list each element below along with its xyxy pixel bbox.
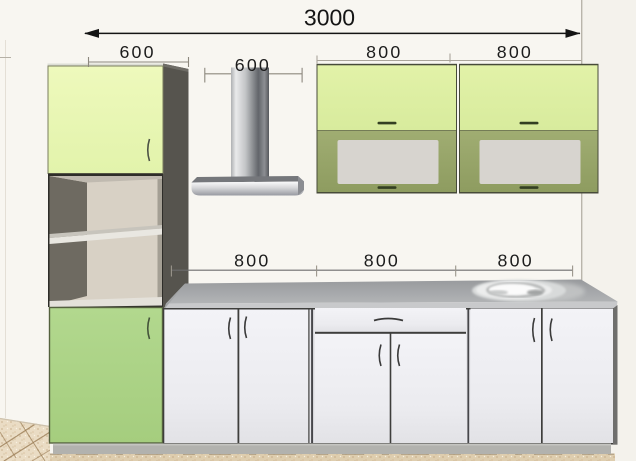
svg-text:800: 800 <box>497 42 533 62</box>
svg-text:3000: 3000 <box>304 5 355 31</box>
svg-text:800: 800 <box>366 42 402 62</box>
svg-text:800: 800 <box>234 251 270 271</box>
svg-text:800: 800 <box>364 251 400 271</box>
svg-text:600: 600 <box>235 55 271 75</box>
svg-text:800: 800 <box>498 251 534 271</box>
svg-text:600: 600 <box>119 42 155 62</box>
